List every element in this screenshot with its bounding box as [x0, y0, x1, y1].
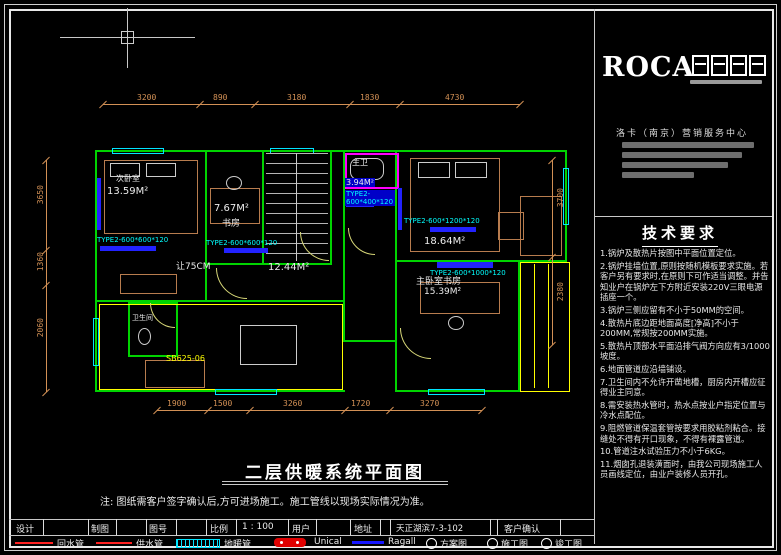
balcony-line-2	[548, 264, 549, 388]
contact-line	[622, 142, 754, 148]
tb-address-label: 地址	[354, 522, 372, 535]
tb-project: 天正湖滨7-3-102	[396, 522, 463, 534]
tb-client-label: 用户	[292, 522, 310, 535]
window-left	[93, 318, 99, 366]
radiator	[224, 248, 268, 253]
tech-item: 3.锅炉三侧应留有不小于50MM的空间。	[600, 305, 770, 316]
floor-heating-pipe-label: 地暖管	[224, 537, 251, 550]
cabinet	[145, 360, 205, 388]
room-area: 7.67M²	[214, 203, 249, 214]
titleblock-mid-line	[9, 535, 595, 536]
wall-mstudy-left	[395, 260, 397, 392]
contact-line	[622, 152, 742, 158]
boiler-model: SB625-06	[166, 354, 205, 363]
dim-value: 3180	[287, 93, 306, 102]
drawing-note: 注: 图纸需客户签字确认后,方可进场施工。施工管线以现场实际情况为准。	[100, 493, 430, 508]
cad-sheet: 主卫 TYPE2-600*600*120 TYPE2-600*600*120 T…	[0, 0, 781, 555]
construction-drawing-mark	[487, 538, 498, 549]
tech-item: 6.地面管道应沿墙铺设。	[600, 364, 770, 375]
tech-item: 4.散热片底边距地面高度[净高]不小于200MM,常规按200MM实施。	[600, 318, 770, 339]
radiator	[437, 262, 493, 268]
titleblock-top-line	[9, 519, 595, 520]
room-name: 卫生间	[132, 313, 153, 323]
radiator-brand-label: Ragall	[388, 537, 416, 547]
wall-corridor-bottom	[343, 340, 397, 342]
radiator	[430, 227, 476, 232]
room-name: 次卧室	[116, 173, 140, 184]
room-area: 12.44M²	[268, 262, 309, 273]
logo-cjk-glyph	[730, 55, 747, 76]
pillow	[418, 162, 450, 178]
mstudy-chair	[448, 316, 464, 330]
pillow	[455, 162, 487, 178]
tb-client-confirm: 客户确认	[504, 522, 540, 535]
dim-line-top	[103, 104, 520, 105]
roca-logo: ROCA	[602, 52, 694, 83]
dim-value: 1830	[360, 93, 379, 102]
room-area: 15.39M²	[424, 287, 461, 297]
radiator-spec: TYPE2-600*1200*120	[404, 217, 480, 225]
window-top-1	[112, 148, 164, 154]
tech-item: 7.卫生间内不允许开凿地槽，厨房内开槽应征得业主同意。	[600, 377, 770, 398]
drawing-title: 二层供暖系统平面图	[215, 458, 455, 483]
logo-cjk-glyph	[692, 55, 709, 76]
tb-drawing-no-label: 图号	[149, 522, 167, 535]
radiator	[398, 188, 402, 230]
clearance-note: 让75CM	[176, 259, 211, 272]
dim-value: 3200	[137, 93, 156, 102]
dim-line-right	[552, 160, 553, 345]
tb-designer-label: 设计	[16, 522, 34, 535]
pillow	[146, 163, 176, 177]
dim-value: 3270	[420, 399, 439, 408]
radiator-spec: TYPE2-600*600*120	[206, 239, 277, 247]
scheme-drawing-mark	[426, 538, 437, 549]
radiator-spec: TYPE2-600*600*120	[97, 236, 168, 244]
crosshair-box	[121, 31, 134, 44]
wall-int-1	[205, 150, 207, 302]
dim-value: 3700	[556, 188, 565, 207]
room-name: 书房	[222, 216, 240, 229]
tech-item: 5.散热片顶部水平面沿排气阀方向应有3/1000坡度。	[600, 341, 770, 362]
stair-rail	[296, 153, 297, 261]
radiator-brand-symbol	[352, 541, 384, 544]
tech-item: 2.锅炉挂墙位置,原则按随机模板要求实施。若客户另有要求时,在原则下可作适当调整…	[600, 261, 770, 303]
dim-value: 3650	[36, 185, 45, 204]
floor-heating-pipe-symbol	[176, 539, 220, 548]
dim-value: 2060	[36, 318, 45, 337]
dim-value: 1500	[213, 399, 232, 408]
logo-cjk-glyph	[711, 55, 728, 76]
room-area: 18.64M²	[424, 236, 465, 247]
room-area: 3.94M²	[345, 178, 375, 187]
return-pipe-symbol	[15, 542, 53, 544]
logo-cjk-glyph	[749, 55, 766, 76]
room-name: 主卧室书房	[416, 274, 461, 287]
dim-value: 890	[213, 93, 227, 102]
dim-line-left	[46, 160, 47, 392]
wall-int-3	[330, 150, 332, 265]
contact-line	[622, 162, 728, 168]
tech-item: 9.阻燃管道保温套管按要求用胶粘剂粘合。接缝处不得有开口现象，不得有裸露管道。	[600, 423, 770, 444]
tb-drafter-label: 制图	[91, 522, 109, 535]
study-chair	[226, 176, 242, 190]
dim-value: 1900	[167, 399, 186, 408]
tech-item: 8.需安装热水管时，热水点按业户指定位置与冷水点配位。	[600, 400, 770, 421]
boiler-brand-label: Unical	[314, 537, 342, 547]
master-side-table	[498, 212, 524, 240]
radiator	[97, 178, 101, 230]
radiator-spec: TYPE2-600*400*120	[345, 190, 395, 206]
tb-scale-label: 比例	[210, 522, 228, 535]
boiler-brand-symbol	[274, 538, 306, 547]
tech-item: 11.烟囱孔退装潢面时，由我公司现场施工人员画线定位，由业户装修人员开孔。	[600, 459, 770, 480]
dim-value: 1360	[36, 252, 45, 271]
master-bath-label: 主卫	[352, 157, 368, 168]
balcony-line-1	[534, 264, 535, 388]
contact-line	[622, 172, 694, 178]
radiator	[100, 246, 156, 251]
construction-drawing-label: 施工图	[501, 537, 528, 550]
tech-item: 1.锅炉及散热片按图中平面位置定位。	[600, 248, 770, 259]
tech-item: 10.管道注水试验压力不小于6KG。	[600, 446, 770, 457]
window-bottom-1	[215, 389, 277, 395]
logo-tagline	[690, 80, 762, 84]
service-center-name: 洛卡（南京）营销服务中心	[616, 126, 748, 139]
supply-pipe-label: 供水管	[136, 537, 163, 550]
completion-drawing-mark	[541, 538, 552, 549]
dim-value: 1720	[351, 399, 370, 408]
logo-divider	[594, 216, 772, 217]
dim-value: 4730	[445, 93, 464, 102]
return-pipe-label: 回水管	[57, 537, 84, 550]
room-area: 13.59M²	[107, 186, 148, 197]
supply-pipe-symbol	[96, 542, 132, 544]
dim-value: 2380	[556, 282, 565, 301]
panel-divider	[594, 9, 595, 544]
terrace-table	[240, 325, 297, 365]
tech-requirements-list: 1.锅炉及散热片按图中平面位置定位。 2.锅炉挂墙位置,原则按随机模板要求实施。…	[600, 248, 770, 482]
dim-value: 3260	[283, 399, 302, 408]
completion-drawing-label: 竣工图	[555, 537, 582, 550]
dresser	[120, 274, 177, 294]
toilet	[138, 328, 151, 345]
scheme-drawing-label: 方案图	[440, 537, 467, 550]
tech-requirements-title: 技术要求	[642, 222, 718, 247]
window-bottom-2	[428, 389, 485, 395]
tb-scale-value: 1 : 100	[242, 522, 274, 532]
